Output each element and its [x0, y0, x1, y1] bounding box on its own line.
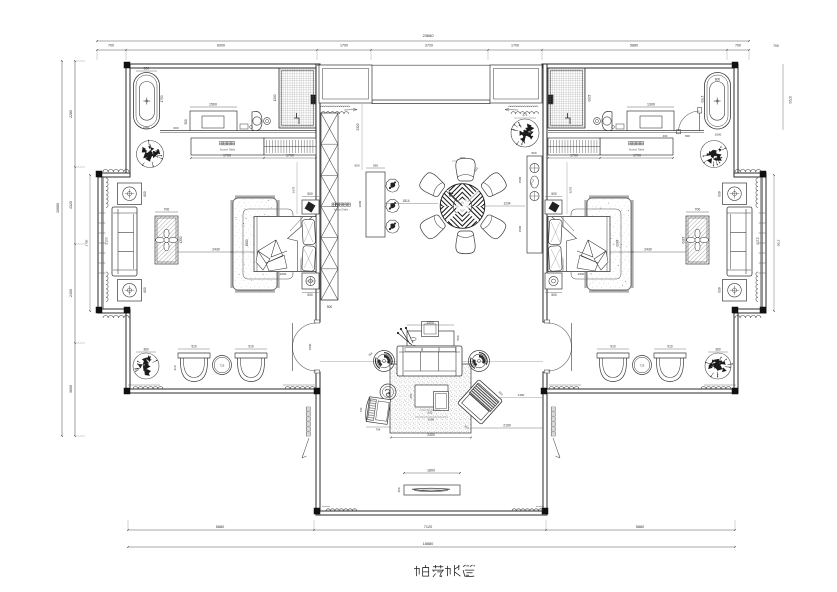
svg-text:1500: 1500: [426, 321, 434, 325]
svg-text:1234: 1234: [503, 202, 510, 206]
svg-text:10680: 10680: [56, 203, 60, 213]
svg-text:500: 500: [307, 192, 313, 196]
svg-text:7120: 7120: [424, 525, 432, 529]
svg-text:700: 700: [773, 44, 779, 48]
svg-text:360: 360: [143, 348, 149, 352]
svg-text:1800: 1800: [615, 239, 619, 246]
svg-text:1390: 1390: [518, 393, 525, 397]
svg-text:500: 500: [327, 305, 333, 309]
svg-text:1675: 1675: [569, 187, 573, 194]
svg-text:2320: 2320: [356, 123, 360, 130]
svg-text:Accent Table: Accent Table: [334, 209, 349, 212]
svg-text:2100: 2100: [756, 237, 760, 245]
svg-text:600: 600: [173, 126, 178, 130]
svg-text:700: 700: [735, 44, 741, 48]
svg-text:400: 400: [663, 134, 668, 138]
svg-text:500: 500: [531, 151, 536, 155]
svg-text:1350: 1350: [681, 236, 685, 243]
svg-text:2400: 2400: [69, 289, 73, 297]
svg-text:5880: 5880: [636, 525, 644, 529]
svg-text:Accent Table: Accent Table: [220, 148, 236, 152]
svg-text:500: 500: [551, 293, 557, 297]
svg-text:1000: 1000: [715, 133, 722, 137]
svg-text:18880: 18880: [423, 542, 434, 546]
svg-text:764: 764: [376, 428, 381, 432]
svg-text:800: 800: [685, 134, 690, 138]
svg-text:2700: 2700: [777, 240, 781, 247]
svg-text:725: 725: [640, 364, 645, 368]
svg-text:2000: 2000: [578, 272, 585, 276]
svg-text:1500: 1500: [308, 343, 312, 350]
svg-text:700: 700: [164, 208, 170, 212]
svg-text:1200: 1200: [273, 94, 277, 101]
svg-text:1750: 1750: [160, 95, 164, 102]
svg-text:910: 910: [667, 345, 673, 349]
svg-text:500: 500: [456, 335, 460, 340]
svg-text:3720: 3720: [425, 44, 433, 48]
svg-text:600: 600: [143, 287, 147, 293]
svg-text:23680: 23680: [422, 33, 434, 38]
svg-text:1350: 1350: [179, 236, 183, 243]
svg-text:1500: 1500: [518, 176, 522, 183]
svg-text:3600: 3600: [69, 385, 73, 393]
svg-text:1300: 1300: [647, 103, 655, 107]
svg-text:4320: 4320: [69, 201, 73, 209]
svg-text:2430: 2430: [644, 247, 652, 251]
svg-text:5720: 5720: [788, 96, 792, 104]
svg-text:620: 620: [428, 411, 433, 415]
svg-text:2000: 2000: [280, 272, 287, 276]
svg-text:800: 800: [715, 78, 721, 82]
svg-text:620: 620: [409, 393, 413, 398]
svg-text:2100: 2100: [105, 237, 109, 245]
svg-text:700: 700: [108, 44, 114, 48]
svg-text:Accent Table: Accent Table: [629, 148, 645, 152]
svg-text:1050: 1050: [143, 126, 150, 130]
svg-text:500: 500: [307, 293, 313, 297]
svg-text:1700: 1700: [633, 153, 641, 157]
svg-text:1500: 1500: [518, 225, 522, 232]
svg-text:910: 910: [248, 345, 254, 349]
svg-text:2080: 2080: [310, 94, 314, 101]
svg-text:350: 350: [397, 487, 401, 492]
svg-text:600: 600: [717, 287, 721, 293]
svg-text:725: 725: [220, 364, 225, 368]
svg-text:800: 800: [144, 67, 150, 71]
svg-text:371: 371: [522, 113, 528, 117]
svg-text:2080: 2080: [550, 94, 554, 101]
svg-text:2280: 2280: [69, 110, 73, 118]
svg-text:1700: 1700: [511, 44, 519, 48]
svg-text:1675: 1675: [292, 186, 296, 193]
svg-text:1700: 1700: [223, 153, 231, 157]
svg-text:600: 600: [143, 191, 147, 197]
svg-text:1700: 1700: [340, 44, 348, 48]
svg-text:360: 360: [715, 348, 721, 352]
svg-text:1814: 1814: [402, 199, 409, 203]
svg-text:300: 300: [184, 119, 188, 125]
svg-text:1500: 1500: [209, 103, 217, 107]
svg-text:500: 500: [551, 192, 557, 196]
svg-text:3000: 3000: [358, 200, 362, 207]
svg-text:720: 720: [359, 407, 363, 412]
svg-text:1800: 1800: [245, 239, 249, 246]
svg-text:1700: 1700: [570, 153, 578, 157]
svg-text:590: 590: [373, 164, 378, 168]
svg-text:2190: 2190: [503, 424, 511, 428]
svg-text:1800: 1800: [427, 469, 435, 473]
svg-text:310: 310: [173, 365, 177, 370]
svg-text:910: 910: [610, 345, 616, 349]
svg-text:600: 600: [717, 191, 721, 197]
svg-text:1060: 1060: [428, 418, 435, 422]
svg-text:6000: 6000: [217, 44, 225, 48]
svg-text:2400: 2400: [427, 433, 435, 437]
svg-text:910: 910: [191, 345, 197, 349]
svg-text:900: 900: [354, 164, 359, 168]
svg-text:2700: 2700: [85, 239, 89, 246]
svg-text:2430: 2430: [212, 247, 220, 251]
svg-text:5880: 5880: [216, 525, 224, 529]
svg-text:1200: 1200: [587, 94, 591, 101]
svg-text:5880: 5880: [630, 44, 638, 48]
svg-text:700: 700: [695, 208, 701, 212]
svg-text:1750: 1750: [700, 95, 704, 102]
svg-text:1700: 1700: [286, 153, 294, 157]
